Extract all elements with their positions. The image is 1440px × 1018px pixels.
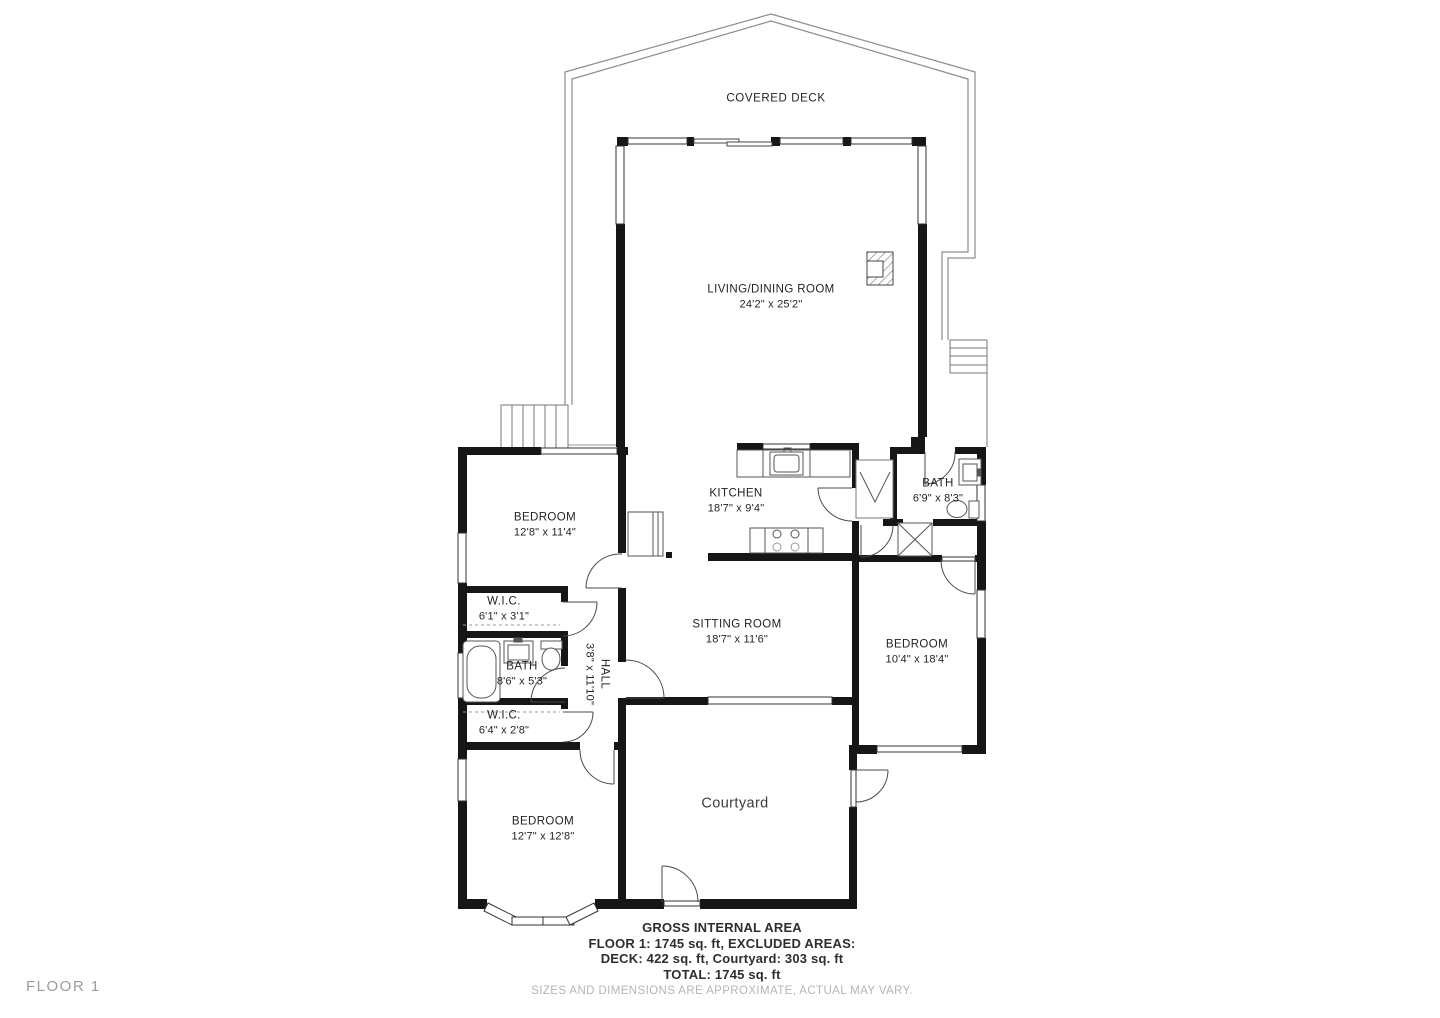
floor-area-line: FLOOR 1: 1745 sq. ft, EXCLUDED AREAS: — [531, 936, 913, 952]
utility-closet-icon — [898, 523, 932, 556]
room-label-covered-deck: COVERED DECK — [726, 92, 825, 107]
closet-rod-icon — [856, 460, 893, 518]
gross-internal-area-title: GROSS INTERNAL AREA — [531, 920, 913, 936]
room-label-courtyard: Courtyard — [701, 795, 768, 814]
room-label-hall: HALL 3'8" x 11'10" — [582, 643, 611, 705]
stove-icon — [750, 528, 823, 553]
door-arc — [861, 525, 893, 557]
kitchen-counter — [737, 448, 850, 477]
room-label-kitchen: KITCHEN 18'7" x 9'4" — [708, 486, 765, 515]
room-label-wic-lower: W.I.C. 6'4" x 2'8" — [479, 708, 529, 737]
room-label-bath-left: BATH 8'6" x 5'3" — [497, 659, 547, 688]
bathtub-icon — [463, 641, 500, 702]
door-arc — [563, 712, 593, 742]
room-label-living-dining: LIVING/DINING ROOM 24'2" x 25'2" — [707, 282, 834, 311]
door-arc — [626, 660, 664, 698]
room-label-bedroom-right: BEDROOM 10'4" x 18'4" — [886, 637, 949, 666]
door-arc — [856, 770, 888, 802]
door-arc — [580, 750, 614, 784]
stairs-icon — [501, 405, 568, 451]
total-area-line: TOTAL: 1745 sq. ft — [531, 967, 913, 983]
cabinet-icon — [628, 512, 663, 556]
door-arc — [563, 602, 597, 636]
room-label-bath-upper: BATH 6'9" x 8'3" — [913, 476, 963, 505]
room-label-bedroom-bottom: BEDROOM 12'7" x 12'8" — [512, 814, 575, 843]
room-label-wic-upper: W.I.C. 6'1" x 3'1" — [479, 594, 529, 623]
sliding-door — [694, 139, 772, 146]
excluded-areas-line: DECK: 422 sq. ft, Courtyard: 303 sq. ft — [531, 951, 913, 967]
floor-plan: COVERED DECK LIVING/DINING ROOM 24'2" x … — [0, 0, 1440, 1018]
fireplace-icon — [867, 252, 893, 285]
room-label-bedroom-left: BEDROOM 12'8" x 11'4" — [514, 510, 576, 539]
room-label-sitting-room: SITTING ROOM 18'7" x 11'6" — [692, 617, 781, 646]
door-arc — [941, 560, 975, 594]
disclaimer-text: SIZES AND DIMENSIONS ARE APPROXIMATE, AC… — [531, 985, 913, 997]
stairs-icon — [950, 340, 987, 373]
area-summary: GROSS INTERNAL AREA FLOOR 1: 1745 sq. ft… — [531, 920, 913, 997]
door-arc — [586, 554, 622, 588]
door-arc — [818, 488, 852, 521]
door-arc — [662, 866, 698, 902]
floor-number-label: FLOOR 1 — [26, 978, 101, 995]
